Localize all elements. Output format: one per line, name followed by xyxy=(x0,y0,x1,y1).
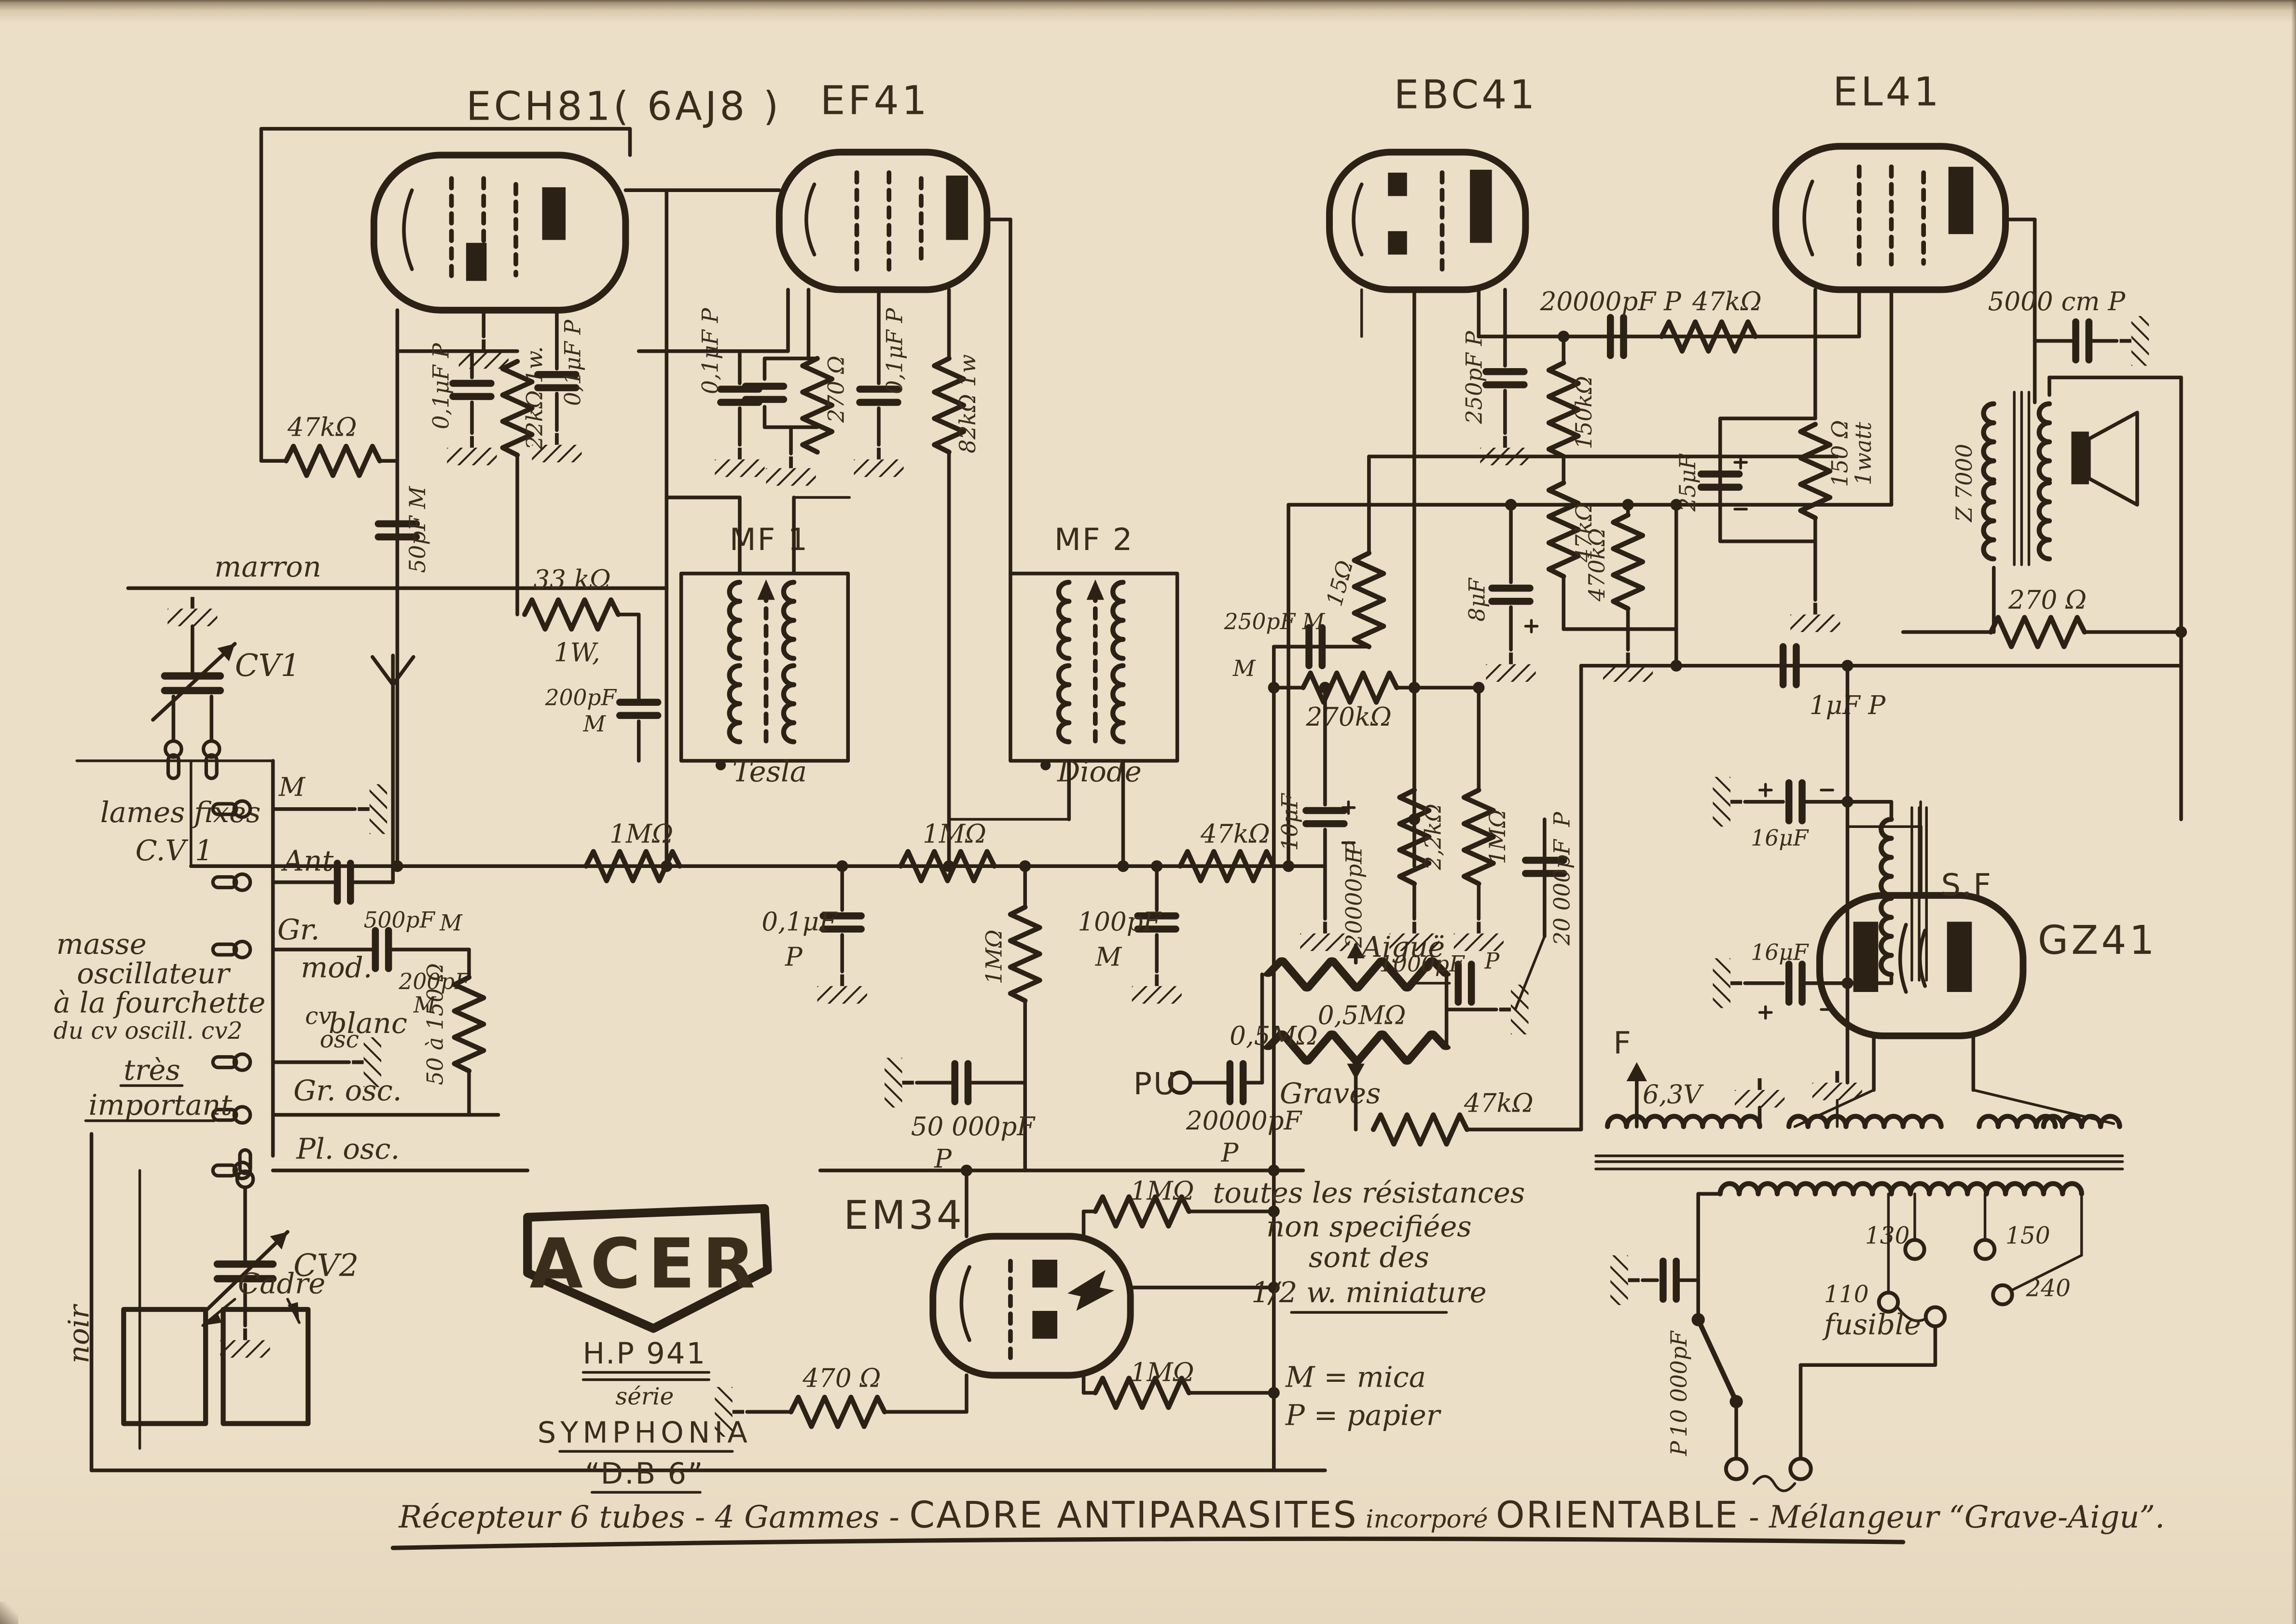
resistor-15-label: 15Ω xyxy=(1321,558,1358,609)
resistor-470-label: 470 Ω xyxy=(802,1363,881,1393)
cap-16uf-a: 16μF xyxy=(1751,826,1809,851)
tube-ef41: EF41 xyxy=(779,78,987,290)
z7000-label: Z 7000 xyxy=(1951,444,1977,523)
resistor-270k-label: 270kΩ xyxy=(1306,702,1392,732)
terminal-gr-osc: Gr. osc. xyxy=(293,1073,401,1107)
resistor-1m-e: 1MΩ xyxy=(1131,1176,1194,1206)
cap-500pf-m: M xyxy=(439,910,463,936)
cap-01uf-ef-grid: 0,1μF P xyxy=(697,307,723,394)
note-masse-4: du cv oscill. cv2 xyxy=(54,1018,243,1045)
cap-20000-v2p: P xyxy=(1549,811,1575,827)
note-masse-3: à la fourchette xyxy=(54,986,266,1019)
cap-250pf-p: 250pF P xyxy=(1461,330,1487,425)
wire-label-marron: marron xyxy=(214,550,321,583)
pot1-label: 0,5MΩ xyxy=(1318,1001,1406,1031)
acer-logo: ACER xyxy=(530,1224,763,1304)
terminal-gr: Gr. xyxy=(277,913,320,946)
cap-20000-coupling: 20000pF P xyxy=(1540,287,1682,317)
cap-01uf-af1: 0,1μF xyxy=(761,907,838,937)
cap-8uf-label: 8μF xyxy=(1464,578,1490,621)
note-masse-1: masse xyxy=(56,927,147,961)
terminal-m: M xyxy=(278,772,306,802)
tube-em34: EM34 xyxy=(844,1193,1130,1375)
if-transformer-mf1: MF 1 Tesla xyxy=(681,522,848,788)
resistor-270-nfb: 270 Ω xyxy=(2008,585,2087,615)
resistor-47k-det: 47kΩ xyxy=(1200,819,1270,849)
mf2-label: MF 2 xyxy=(1054,522,1134,558)
cap-100pf-label: 100pF xyxy=(1078,907,1162,937)
cap-10000-p: P xyxy=(1666,1440,1692,1456)
note-line2: non specifiées xyxy=(1266,1210,1472,1243)
pu-label: PU xyxy=(1134,1066,1177,1102)
ef41-section: 0,1μF P 270 Ω 0,1μF P 82kΩ 1w xyxy=(639,220,1010,866)
cap-16uf-b: 16μF xyxy=(1751,939,1809,965)
note-tres: très xyxy=(124,1053,180,1087)
terminal-ant: Ant xyxy=(281,844,334,877)
left-input-section: marron CV1 lames fixes C.V 1 M Ant Gr. m… xyxy=(54,550,1325,1471)
cap-10uf-label: 10μF xyxy=(1277,793,1302,851)
branding-block: ACER H.P 941 série SYMPHONIA “D.B 6” xyxy=(527,1209,767,1492)
cap-100pf-m: M xyxy=(1095,942,1122,972)
resistor-33k-watt: 1W, xyxy=(554,638,600,668)
serie-label: série xyxy=(615,1383,674,1410)
resistor-150k-label: 150kΩ xyxy=(1571,376,1597,449)
cap-1000pf-label: 1000pF xyxy=(1379,951,1465,977)
resistor-1m-d: 1MΩ xyxy=(1485,810,1510,864)
resistor-1m-f: 1MΩ xyxy=(1131,1358,1194,1388)
cap-20000-pu-p: P xyxy=(1221,1138,1239,1168)
cv1-label: CV1 xyxy=(235,648,300,684)
resistor-1m-c: 1MΩ xyxy=(982,930,1007,984)
resistor-82k-label: 82kΩ 1w xyxy=(955,354,981,453)
note-masse-2: oscillateur xyxy=(77,957,231,990)
note-line1: toutes les résistances xyxy=(1213,1176,1525,1210)
schematic-canvas: ECH81( 6AJ8 ) EF41 EBC41 EL41 GZ41 xyxy=(0,0,2296,1624)
cap-20000-v1p: P xyxy=(1342,840,1367,856)
cap-1000pf-p: P xyxy=(1484,948,1500,974)
tube-ech81: ECH81( 6AJ8 ) xyxy=(374,84,782,310)
resistor-1m-a: 1MΩ xyxy=(609,819,673,849)
tube-label-gz41: GZ41 xyxy=(2038,918,2158,963)
terminal-mod: mod. xyxy=(301,951,372,984)
caption-text: Récepteur 6 tubes - 4 Gammes - CADRE ANT… xyxy=(398,1494,2165,1536)
scanned-schematic-sheet: ECH81( 6AJ8 ) EF41 EBC41 EL41 GZ41 xyxy=(0,0,2296,1624)
terminal-pl-osc: Pl. osc. xyxy=(296,1132,400,1166)
resistor-1m-b: 1MΩ xyxy=(923,819,986,849)
tube-ebc41: EBC41 xyxy=(1329,72,1538,289)
cap-500pf-label: 500pF xyxy=(364,908,436,933)
resistor-150-watt: 1watt xyxy=(1851,422,1876,485)
resistor-470k-label: 470kΩ xyxy=(1584,528,1610,602)
note-line3: sont des xyxy=(1309,1240,1429,1274)
cap-50000-label: 50 000pF xyxy=(911,1112,1036,1142)
model-hp941: H.P 941 xyxy=(583,1337,707,1371)
db6-label: “D.B 6” xyxy=(585,1457,705,1491)
cap-250pf-m: 250pF M xyxy=(1224,609,1326,634)
resistor-150-label: 150 Ω xyxy=(1827,420,1853,487)
padding-resistor-label: 50 à 150 Ω xyxy=(422,963,448,1085)
filament-63v-label: 6,3V xyxy=(1643,1079,1704,1109)
tap-110: 110 xyxy=(1824,1281,1869,1308)
tube-label-ef41: EF41 xyxy=(820,78,930,124)
resistor-2k2-label: 2,2kΩ xyxy=(1420,804,1446,871)
tube-gz41: GZ41 xyxy=(1820,895,2158,1036)
resistor-47k-el: 47kΩ xyxy=(1692,287,1762,317)
cap-01uf-af2: P xyxy=(785,942,803,972)
tube-label-ech81: ECH81( 6AJ8 ) xyxy=(466,84,782,130)
legend-mica: M = mica xyxy=(1285,1361,1426,1394)
cadre-label: Cadre xyxy=(238,1267,326,1300)
tube-el41: EL41 xyxy=(1776,69,2006,289)
cap-10000-label: 10 000pF xyxy=(1666,1330,1692,1437)
fusible-label: fusible xyxy=(1822,1308,1921,1341)
if-transformer-mf2: MF 2 Diode xyxy=(1010,522,1177,788)
cap-250pf-m2: M xyxy=(1232,656,1256,681)
cap-20000-v2: 20 000pF xyxy=(1549,839,1575,946)
resistor-33k-label: 33 kΩ xyxy=(533,564,610,594)
sf-choke-label: S.F xyxy=(1941,867,1992,903)
tap-150: 150 xyxy=(2006,1223,2050,1250)
mf1-brand: Tesla xyxy=(733,755,807,788)
tap-240: 240 xyxy=(2025,1275,2071,1302)
caption: Récepteur 6 tubes - 4 Gammes - CADRE ANT… xyxy=(393,1494,2165,1548)
tube-label-em34: EM34 xyxy=(844,1193,965,1239)
note-line4: 1/2 w. miniature xyxy=(1251,1276,1486,1309)
graves-label: Graves xyxy=(1280,1076,1381,1110)
cap-5000cm-label: 5000 cm P xyxy=(1988,287,2126,317)
tube-label-ebc41: EBC41 xyxy=(1394,72,1537,118)
resistor-22k-label: 22kΩ.1w. xyxy=(522,346,548,450)
cap-20000-pu: 20000pF xyxy=(1186,1106,1303,1136)
terminal-cv-osc2: osc xyxy=(320,1026,359,1053)
note-important: important xyxy=(89,1088,233,1122)
tube-label-el41: EL41 xyxy=(1833,69,1942,115)
resistor-270-cath: 270 Ω xyxy=(823,356,849,423)
cv1-ref-label: C.V 1 xyxy=(136,834,213,867)
cap-01uf-osc: 0,1μF P xyxy=(428,343,454,429)
cap-50pf-label: 50pF M xyxy=(405,486,430,573)
cap-01uf-ech-anode: 0,1μF P xyxy=(560,319,585,406)
legend-papier: P = papier xyxy=(1285,1399,1442,1432)
cap-200pf-grid-m: M xyxy=(582,711,606,737)
resistor-47k-avc: 47kΩ xyxy=(287,413,357,442)
cap-200pf-grid: 200pF xyxy=(545,685,617,711)
cap-01uf-ef-screen: 0,1μF P xyxy=(882,307,908,394)
power-filter-section: 16μF 16μF S.F xyxy=(1713,660,1992,1083)
filament-f-label: F xyxy=(1613,1025,1632,1061)
symphonia-label: SYMPHONIA xyxy=(538,1416,752,1450)
cap-20000-v1: 20000pF xyxy=(1342,848,1367,949)
resistor-47k-tone: 47kΩ xyxy=(1464,1088,1534,1118)
